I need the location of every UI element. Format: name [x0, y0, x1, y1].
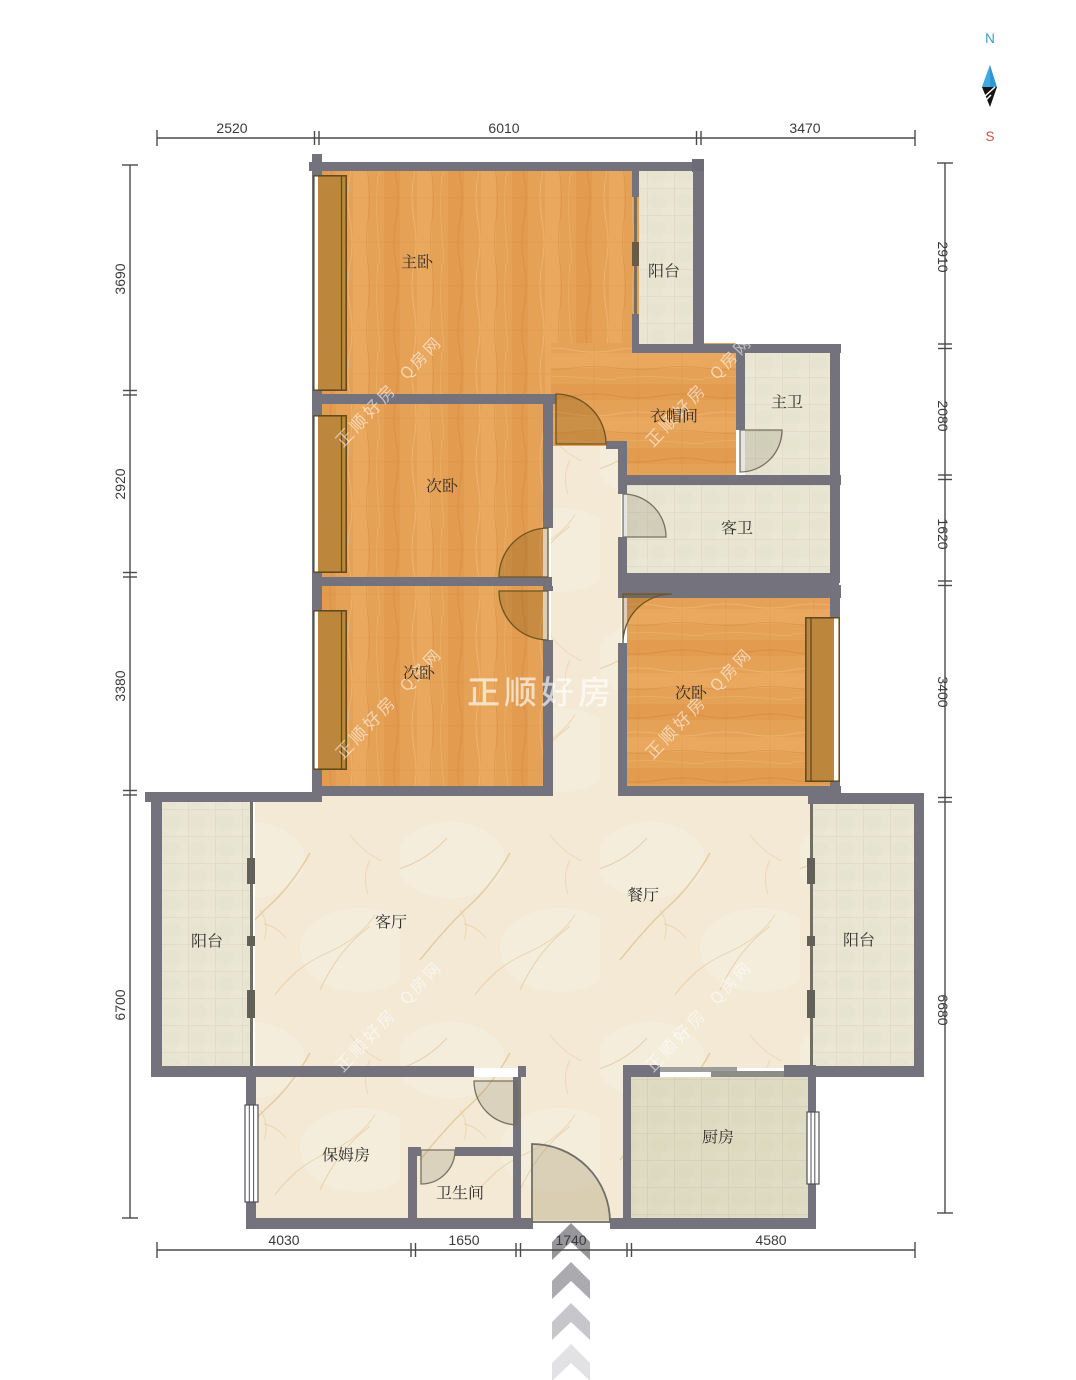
svg-text:N: N	[985, 31, 995, 46]
svg-text:3380: 3380	[112, 670, 128, 701]
svg-text:1620: 1620	[935, 518, 951, 549]
svg-text:2910: 2910	[935, 241, 951, 272]
svg-text:3690: 3690	[112, 263, 128, 294]
svg-text:2520: 2520	[216, 120, 247, 136]
svg-text:6680: 6680	[935, 994, 951, 1025]
svg-text:4030: 4030	[268, 1232, 299, 1248]
svg-text:2080: 2080	[935, 400, 951, 431]
svg-text:3400: 3400	[935, 676, 951, 707]
svg-text:2920: 2920	[112, 468, 128, 499]
svg-text:6010: 6010	[488, 120, 519, 136]
svg-text:S: S	[985, 129, 994, 144]
svg-text:1740: 1740	[555, 1232, 586, 1248]
svg-text:4580: 4580	[755, 1232, 786, 1248]
svg-text:1650: 1650	[448, 1232, 479, 1248]
svg-text:6700: 6700	[112, 989, 128, 1020]
svg-text:3470: 3470	[789, 120, 820, 136]
